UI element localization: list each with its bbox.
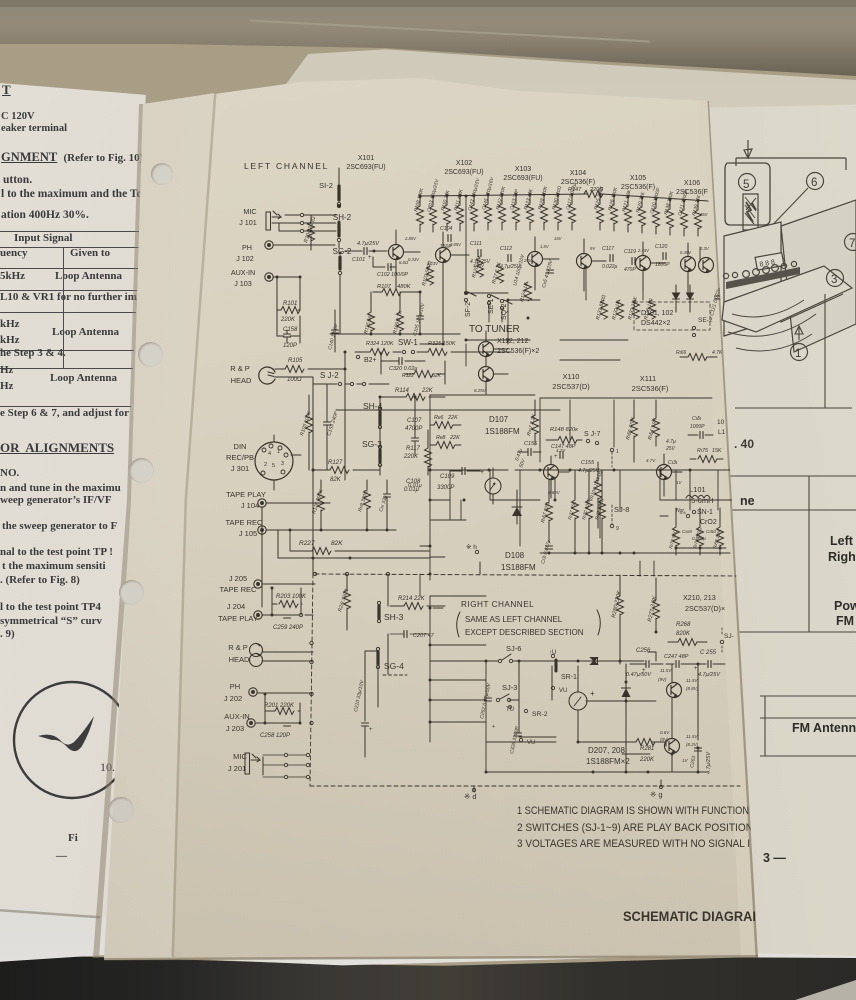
svg-text:J 101: J 101 [239,218,257,227]
svg-text:X110: X110 [563,372,580,381]
svg-text:8.25V: 8.25V [474,388,487,393]
svg-text:+: + [642,668,646,674]
svg-text:R110 33K: R110 33K [440,189,451,212]
svg-text:2.85V: 2.85V [404,236,417,241]
svg-text:220K: 220K [639,757,655,763]
svg-text:SCHEMATIC DIAGRAI: SCHEMATIC DIAGRAI [623,909,756,924]
svg-text:C158: C158 [283,327,298,333]
svg-text:SG-4: SG-4 [384,661,404,671]
svg-text:Rι75: Rι75 [697,448,708,454]
svg-text:C111: C111 [470,241,482,247]
svg-text:FM A: FM A [836,614,856,628]
svg-text:1800P: 1800P [655,262,670,268]
svg-text:AUX-IN: AUX-IN [224,712,249,721]
svg-text:+: + [694,666,698,672]
svg-text:SR-2: SR-2 [532,711,548,718]
svg-text:HEAD: HEAD [229,655,250,664]
svg-text:R114: R114 [395,388,410,394]
svg-text:11.5V: 11.5V [686,734,698,739]
svg-text:0.6V: 0.6V [660,730,670,735]
svg-text:C120: C120 [655,244,668,250]
svg-text:C140 1000P: C140 1000P [327,322,340,350]
svg-text:C210 33μ/10V: C210 33μ/10V [353,679,366,712]
svg-text:(8.2V): (8.2V) [686,742,699,747]
svg-text:9V: 9V [590,246,596,251]
svg-text:J 201: J 201 [228,764,246,773]
svg-text:R203 100K: R203 100K [276,594,307,600]
svg-text:2.45V: 2.45V [637,248,650,253]
svg-text:C 255: C 255 [700,650,717,656]
svg-text:C203 100μ/25V: C203 100μ/25V [426,178,441,212]
svg-text:C104: C104 [440,226,453,232]
svg-text:X111: X111 [640,374,656,383]
svg-text:4700P: 4700P [405,426,422,432]
svg-text:100Ω: 100Ω [287,377,302,383]
svg-text:AUX-IN: AUX-IN [231,268,255,277]
svg-text:3 VOLTAGES ARE MEASURED WI: 3 VOLTAGES ARE MEASURED WITH NO SIGNAL I [517,838,750,850]
svg-text:R129 22K: R129 22K [635,191,647,214]
svg-text:4.7K: 4.7K [712,350,723,356]
svg-text:SJ-3: SJ-3 [502,683,517,692]
svg-text:16V: 16V [554,236,563,241]
svg-text:HEAD: HEAD [231,376,252,385]
svg-text:X102: X102 [456,160,472,167]
svg-text:22K: 22K [447,415,458,421]
svg-text:TAPE PLAY: TAPE PLAY [226,490,266,499]
svg-text:Rι27 2.7K: Rι27 2.7K [491,261,503,284]
svg-text:1 SCHEMATIC DIAGRAM IS SHOWN: 1 SCHEMATIC DIAGRAM IS SHOWN WITH FUNCTI… [517,805,749,817]
svg-text:C247 48P: C247 48P [664,654,689,660]
svg-text:X104: X104 [570,170,586,177]
svg-text:C155: C155 [581,460,595,466]
svg-text:DIN: DIN [234,442,247,451]
svg-text:SE-2: SE-2 [698,317,713,324]
svg-text:Rιι8: Rιι8 [436,435,446,441]
svg-text:2SC693(FU): 2SC693(FU) [503,175,542,182]
svg-text:R121 1.8K: R121 1.8K [621,188,633,212]
svg-text:15K: 15K [712,448,722,454]
svg-text:Cι50: Cι50 [706,529,716,535]
svg-text:C145 220μ/16V: C145 220μ/16V [481,176,496,210]
svg-text:4.7μ/25V: 4.7μ/25V [698,672,721,678]
svg-text:1: 1 [616,449,619,455]
svg-text:220K: 220K [280,317,296,323]
svg-text:C117: C117 [602,246,615,252]
svg-text:VU: VU [527,740,535,746]
svg-text:SE-1: SE-1 [488,298,495,314]
svg-text:2: 2 [264,462,267,468]
svg-text:X101: X101 [358,155,374,162]
svg-text:C102 100/0P: C102 100/0P [377,272,408,278]
svg-text:480K: 480K [397,284,412,290]
svg-text:2SC693(FU): 2SC693(FU) [444,169,483,176]
svg-text:1S188FM×2: 1S188FM×2 [586,757,630,766]
svg-text:R227: R227 [299,540,315,547]
svg-text:3: 3 [281,461,284,467]
svg-text:C258 120P: C258 120P [260,733,290,739]
svg-text:2SC536(F): 2SC536(F) [632,384,669,393]
svg-text:Rι70 100K: Rι70 100K [581,497,592,520]
svg-text:11.5V: 11.5V [686,678,698,683]
svg-text:X103: X103 [515,166,531,173]
svg-text:Cιι5 43μ/25V: Cιι5 43μ/25V [541,259,554,289]
svg-text:J 203: J 203 [226,724,244,733]
svg-text:SJ-: SJ- [724,633,734,640]
svg-text:+: + [369,727,373,733]
svg-text:4.7μ/25V: 4.7μ/25V [706,751,712,774]
svg-text:. 40: . 40 [734,437,754,451]
svg-text:C263: C263 [689,755,697,768]
svg-text:2.3V: 2.3V [699,246,710,251]
svg-text:R & P: R & P [230,364,250,373]
svg-text:2.85V: 2.85V [449,242,462,247]
svg-text:VU: VU [559,688,567,694]
svg-text:X210, 213: X210, 213 [683,593,716,602]
svg-text:+: + [590,689,595,698]
svg-text:EXCEPT DESCRIBED SECTION: EXCEPT DESCRIBED SECTION [465,628,584,637]
svg-text:D207, 208: D207, 208 [588,746,625,755]
svg-text:82K: 82K [330,477,342,483]
svg-text:5: 5 [272,463,275,469]
svg-text:C119: C119 [624,249,636,255]
svg-text:5: 5 [743,179,749,191]
svg-text:C101: C101 [352,257,365,263]
svg-text:S J-7: S J-7 [584,431,600,438]
svg-text:J 204: J 204 [227,602,245,611]
svg-text:Cι3ι: Cι3ι [668,460,678,466]
svg-text:11.5V: 11.5V [660,668,672,673]
svg-text:4.7V: 4.7V [646,458,656,463]
svg-text:0.033μ: 0.033μ [692,536,706,541]
svg-text:C113 39P: C113 39P [509,188,520,211]
svg-text:R130 820Ω: R130 820Ω [551,185,563,211]
svg-text:0.33V: 0.33V [408,257,420,262]
svg-text:2SC536(F): 2SC536(F) [561,179,595,186]
svg-text:Rιι6: Rιι6 [434,415,444,421]
svg-text:J 105: J 105 [239,529,257,538]
svg-text:※ h: ※ h [466,544,477,551]
svg-text:CrO2: CrO2 [700,519,717,526]
svg-text:0.82V: 0.82V [548,490,561,495]
svg-text:J 205: J 205 [229,574,247,583]
svg-text:SAME AS LEFT CHANNEL: SAME AS LEFT CHANNEL [465,615,563,624]
svg-text:MIC: MIC [243,207,256,216]
svg-text:Cι3ι 0.047μ: Cι3ι 0.047μ [540,539,552,564]
svg-text:0.01μ: 0.01μ [408,483,422,489]
svg-text:R128 120K: R128 120K [537,185,549,211]
svg-text:(8.8V): (8.8V) [686,686,699,691]
svg-text:R268: R268 [676,622,691,628]
svg-text:22K: 22K [421,388,434,394]
svg-text:R148 820κ: R148 820κ [550,427,579,433]
svg-text:+: + [554,454,558,460]
svg-text:SF-2: SF-2 [465,302,472,317]
svg-text:TAPE REC: TAPE REC [220,585,258,594]
svg-text:76V: 76V [700,212,709,217]
svg-text:SW-1: SW-1 [398,338,418,347]
svg-text:PH: PH [242,243,252,252]
svg-text:9: 9 [616,526,619,532]
svg-text:1V: 1V [682,758,689,763]
svg-text:Rιι9 330Ω: Rιι9 330Ω [357,490,370,513]
svg-text:1: 1 [795,348,801,360]
svg-text:L101: L101 [689,485,706,494]
svg-text:4.7μ/25V: 4.7μ/25V [357,241,380,247]
svg-text:TU: TU [506,707,514,713]
svg-text:X105: X105 [630,175,646,182]
svg-text:R & P: R & P [228,643,248,652]
svg-text:R201 220K: R201 220K [264,703,295,709]
svg-text:0.45V: 0.45V [680,250,692,255]
svg-text:R111 4.8K: R111 4.8K [453,188,465,212]
svg-text:2SC536(F): 2SC536(F) [621,184,655,191]
svg-text:R122 820K: R122 820K [495,185,507,211]
svg-text:LEFT CHANNEL: LEFT CHANNEL [244,161,329,171]
svg-text:R108 100K: R108 100K [413,187,425,213]
svg-text:0.47μ/50V: 0.47μ/50V [626,672,652,678]
svg-text:Rι66: Rι66 [676,350,687,356]
svg-text:820K: 820K [676,631,691,637]
svg-text:25V: 25V [665,446,676,452]
svg-text:7: 7 [849,238,855,250]
svg-text:D107: D107 [489,415,509,424]
svg-text:470P: 470P [624,267,636,273]
svg-text:B2+: B2+ [364,357,377,364]
svg-text:Powe: Powe [834,599,856,613]
svg-text:C143 100μ/25V: C143 100μ/25V [467,177,482,211]
svg-text:J 301: J 301 [231,464,249,473]
svg-text:1S188FM: 1S188FM [501,563,536,572]
svg-text:C109: C109 [440,474,455,480]
svg-text:2SC537(D)×: 2SC537(D)× [685,604,725,613]
svg-text:R133 2.2K: R133 2.2K [627,295,639,320]
svg-text:+: + [492,724,495,730]
svg-text:4.7μ: 4.7μ [666,439,676,445]
svg-text:2SC693(FU): 2SC693(FU) [346,164,385,171]
svg-text:10: 10 [717,419,725,426]
svg-text:C105 100μ/10V: C105 100μ/10V [412,302,427,336]
svg-text:R138 330K: R138 330K [663,190,675,216]
svg-text:SJ-6: SJ-6 [506,644,521,653]
svg-text:3 —: 3 — [763,851,786,865]
svg-text:J 103: J 103 [234,279,252,288]
svg-text:SN-1: SN-1 [697,509,713,516]
svg-text:2SC536(F: 2SC536(F [676,189,708,196]
svg-text:2 SWITCHES (SJ-1~9) ARE PLAY: 2 SWITCHES (SJ-1~9) ARE PLAY BACK POSITI… [517,822,753,834]
svg-text:SH-2: SH-2 [333,213,352,222]
svg-text:DS442×2: DS442×2 [641,320,670,327]
svg-text:R214 22K: R214 22K [398,596,426,602]
svg-text:R127: R127 [328,460,343,466]
svg-text:1V: 1V [676,480,683,485]
svg-text:X112, 212: X112, 212 [497,338,529,345]
svg-text:Cιυ9: Cιυ9 [682,529,692,535]
svg-text:R123 43K: R123 43K [523,188,535,211]
svg-text:Cιδι: Cιδι [692,416,702,422]
svg-text:TAPE REC: TAPE REC [226,518,264,527]
svg-text:4.2V: 4.2V [556,448,566,453]
svg-text:R324 120K: R324 120K [366,341,394,347]
svg-text:D108: D108 [505,551,525,560]
svg-text:4: 4 [268,451,271,457]
svg-text:Left: Left [830,534,854,548]
svg-text:1.8V: 1.8V [540,244,550,249]
svg-text:R281: R281 [640,746,654,752]
svg-text:D101, 102: D101, 102 [641,310,673,317]
svg-text:SI-2: SI-2 [319,181,333,190]
svg-text:↑U: ↑U [549,650,556,656]
svg-text:TAPE PLAY: TAPE PLAY [218,614,258,623]
svg-text:220K: 220K [403,454,419,460]
svg-text:(9V): (9V) [658,677,667,682]
svg-text:R105: R105 [288,358,303,364]
svg-text:RIGHT CHANNEL: RIGHT CHANNEL [461,600,534,609]
svg-text:SJ-8: SJ-8 [614,505,629,514]
svg-text:C259 240P: C259 240P [273,625,303,631]
svg-text:120P: 120P [283,343,297,349]
svg-text:TO TUNER: TO TUNER [469,324,520,335]
svg-text:22K: 22K [449,435,460,441]
svg-text:3300P: 3300P [437,485,454,491]
svg-text:Right: Right [828,550,856,564]
svg-text:J 102: J 102 [236,254,254,263]
svg-text:C159 240P: C159 240P [326,410,340,436]
svg-text:2SC537(D): 2SC537(D) [552,382,590,391]
svg-text:+: + [368,255,372,261]
svg-text:C112: C112 [500,246,512,252]
svg-text:Rιδ4 3.9K: Rιδ4 3.9K [647,417,659,440]
svg-text:R103 100K: R103 100K [299,410,313,436]
svg-text:J 202: J 202 [224,694,242,703]
svg-text:FM Antenna: FM Antenna [792,721,856,735]
svg-text:C320 0.02μ: C320 0.02μ [389,366,417,372]
svg-text:6: 6 [811,177,817,189]
svg-text:82K: 82K [331,540,343,547]
svg-text:SG-3: SG-3 [362,439,382,449]
svg-text:L1: L1 [718,429,726,436]
svg-text:R117: R117 [406,446,421,452]
svg-text:0.022μ: 0.022μ [602,264,618,270]
svg-text:※ g: ※ g [650,790,663,799]
svg-text:J 104: J 104 [241,501,259,510]
svg-text:REC/PB: REC/PB [226,453,254,462]
svg-text:SH-3: SH-3 [384,612,404,622]
svg-text:C156: C156 [524,441,538,447]
svg-text:PH: PH [230,682,240,691]
svg-text:R126 100K: R126 100K [607,186,619,212]
svg-text:1S188FM: 1S188FM [485,427,520,436]
svg-text:SR-1: SR-1 [561,674,577,681]
svg-text:1000P: 1000P [690,424,705,430]
svg-text:(0V): (0V) [660,737,669,742]
svg-text:3: 3 [831,274,837,286]
svg-text:X106: X106 [684,180,700,187]
svg-text:C256: C256 [636,648,651,654]
svg-text:S J-2: S J-2 [320,371,339,380]
svg-text:Rι72 560Ω: Rι72 560Ω [594,497,605,520]
svg-text:※ d: ※ d [464,792,477,801]
svg-text:ne: ne [740,494,755,508]
